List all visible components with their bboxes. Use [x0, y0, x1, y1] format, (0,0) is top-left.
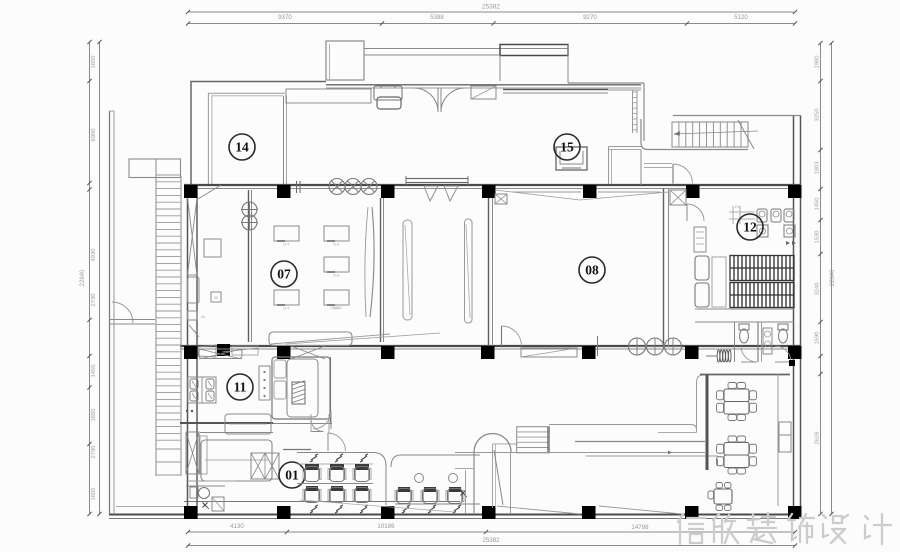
svg-text:5388: 5388 — [430, 14, 444, 21]
svg-text:22840: 22840 — [80, 269, 86, 286]
svg-text:4130: 4130 — [230, 523, 244, 530]
svg-text:114: 114 — [283, 306, 290, 311]
svg-text:6900: 6900 — [91, 129, 97, 142]
svg-text:88: 88 — [214, 296, 218, 300]
svg-text:114: 114 — [333, 273, 340, 278]
svg-text:14798: 14798 — [631, 524, 649, 531]
svg-text:25382: 25382 — [482, 4, 500, 11]
svg-text:1450: 1450 — [815, 198, 821, 211]
svg-text:14: 14 — [235, 140, 249, 155]
svg-text:5120: 5120 — [734, 14, 748, 21]
svg-text:15: 15 — [560, 140, 574, 155]
svg-text:22840: 22840 — [830, 269, 836, 286]
svg-text:1650: 1650 — [91, 409, 97, 422]
svg-text:2730: 2730 — [91, 294, 97, 307]
svg-text:1803: 1803 — [815, 162, 821, 175]
svg-text:3250: 3250 — [815, 109, 821, 122]
svg-text:114: 114 — [283, 242, 290, 247]
svg-text:2790: 2790 — [91, 446, 97, 459]
svg-text:1590: 1590 — [815, 332, 821, 345]
svg-text:4930: 4930 — [91, 249, 97, 262]
svg-text:01: 01 — [285, 468, 299, 483]
svg-text:114: 114 — [333, 242, 340, 247]
svg-text:a/b: a/b — [194, 329, 199, 333]
svg-text:07: 07 — [277, 267, 291, 282]
svg-text:1980: 1980 — [815, 56, 821, 69]
svg-text:1605: 1605 — [91, 488, 97, 501]
svg-text:9370: 9370 — [278, 14, 292, 21]
svg-text:2626: 2626 — [815, 432, 821, 445]
svg-text:08: 08 — [585, 263, 599, 278]
svg-text:03555: 03555 — [330, 305, 342, 310]
svg-text:1530: 1530 — [815, 231, 821, 244]
svg-text:25382: 25382 — [482, 537, 500, 544]
svg-text:1600: 1600 — [91, 56, 97, 69]
svg-text:11: 11 — [234, 380, 247, 395]
svg-text:9270: 9270 — [583, 14, 597, 21]
svg-text:10186: 10186 — [377, 523, 395, 530]
svg-text:3240: 3240 — [815, 283, 821, 296]
svg-text:5a: 5a — [201, 315, 205, 319]
svg-text:12: 12 — [743, 220, 757, 235]
svg-text:4%: 4% — [734, 205, 739, 209]
svg-text:1450: 1450 — [91, 365, 97, 378]
